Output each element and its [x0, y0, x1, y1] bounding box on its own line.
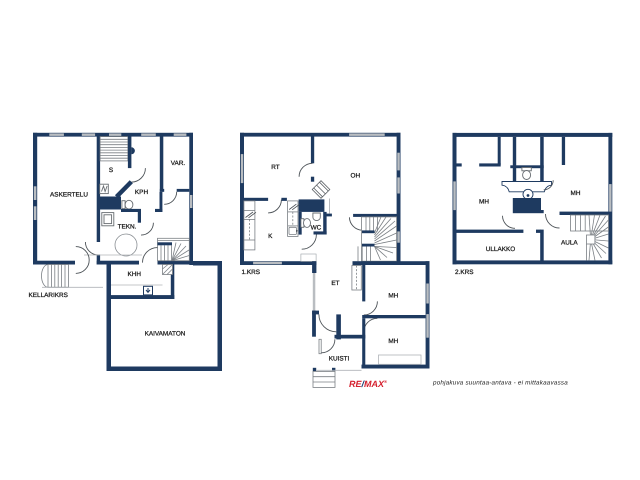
svg-text:pohjakuva suuntaa-antava - ei: pohjakuva suuntaa-antava - ei mittakaava…	[432, 380, 568, 387]
svg-text:MH: MH	[479, 198, 489, 205]
svg-text:KHH: KHH	[128, 271, 142, 278]
svg-text:ULLAKKO: ULLAKKO	[486, 246, 516, 253]
svg-text:S: S	[109, 167, 113, 174]
svg-text:RE/MAX®: RE/MAX®	[349, 379, 387, 389]
svg-text:ET: ET	[331, 280, 339, 287]
svg-text:ASKERTELU: ASKERTELU	[50, 192, 88, 199]
svg-text:1.KRS: 1.KRS	[242, 269, 260, 276]
svg-text:TEKN.: TEKN.	[118, 224, 137, 231]
svg-text:KPH: KPH	[135, 189, 149, 196]
svg-text:MH: MH	[388, 292, 398, 299]
svg-text:2.KRS: 2.KRS	[455, 269, 473, 276]
svg-text:KELLARIKRS: KELLARIKRS	[29, 292, 68, 299]
svg-text:VAR.: VAR.	[171, 160, 186, 167]
svg-text:AULA: AULA	[561, 240, 578, 247]
svg-text:K: K	[268, 233, 273, 240]
svg-text:OH: OH	[351, 172, 361, 179]
svg-text:MH: MH	[388, 338, 398, 345]
svg-text:MH: MH	[571, 190, 581, 197]
svg-text:KUISTI: KUISTI	[329, 356, 350, 363]
svg-text:RT: RT	[271, 164, 279, 171]
svg-text:WC: WC	[311, 224, 322, 231]
svg-text:KAIVAMATON: KAIVAMATON	[145, 330, 186, 337]
